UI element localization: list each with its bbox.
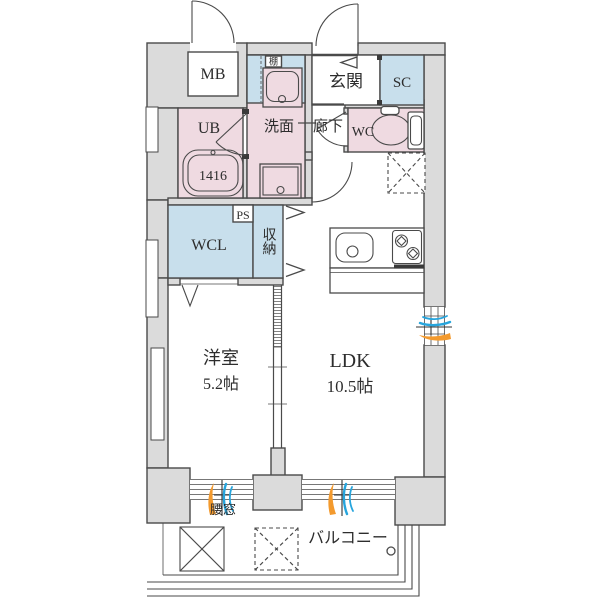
label-waist-window: 腰窓	[210, 502, 236, 517]
label-storage: 収納	[261, 227, 277, 256]
ldk-door-arc	[312, 162, 352, 202]
kitchen-counter-icon	[330, 228, 424, 293]
equipment-box-solid	[180, 527, 224, 571]
label-washroom: 洗面	[264, 118, 294, 135]
label-western-room-size: 5.2帖	[203, 375, 239, 393]
storage-door-arrows	[286, 206, 304, 277]
wcl-folding-door	[180, 279, 238, 306]
mb-door-arc	[192, 1, 234, 43]
label-unit-bath: UB	[198, 120, 220, 137]
label-pipe-space: PS	[236, 208, 249, 222]
label-western-room: 洋室	[203, 348, 239, 368]
counter-edge-bar	[394, 265, 424, 269]
label-toilet: WC	[352, 125, 375, 140]
label-walk-in-closet: WCL	[191, 237, 227, 254]
ub-door-frame-top	[242, 109, 249, 114]
label-entrance: 玄関	[329, 72, 363, 91]
label-ldk-size: 10.5帖	[327, 377, 374, 396]
label-hallway: 廊下	[313, 118, 343, 135]
label-balcony: バルコニー	[308, 530, 388, 547]
floor-plan: MB 棚 玄関 SC UB 1416 洗面 廊下 WC PS WCL 収納 洋室…	[0, 0, 600, 600]
equipment-box-dashed	[255, 528, 298, 570]
label-ldk: LDK	[329, 350, 371, 372]
refrigerator-space	[388, 153, 425, 193]
sc-hinge-bottom	[377, 100, 382, 105]
label-meter-box: MB	[201, 66, 226, 83]
sc-hinge-top	[377, 55, 382, 60]
label-shelf: 棚	[269, 56, 278, 67]
balcony-drain	[387, 547, 395, 555]
label-shoe-closet: SC	[393, 75, 411, 91]
label-bathtub-size: 1416	[199, 169, 227, 184]
window-ldk-south	[302, 479, 395, 500]
washer-pan-icon	[260, 164, 301, 198]
partition-sliding-door	[268, 285, 287, 448]
entrance-door-arc	[316, 4, 358, 46]
